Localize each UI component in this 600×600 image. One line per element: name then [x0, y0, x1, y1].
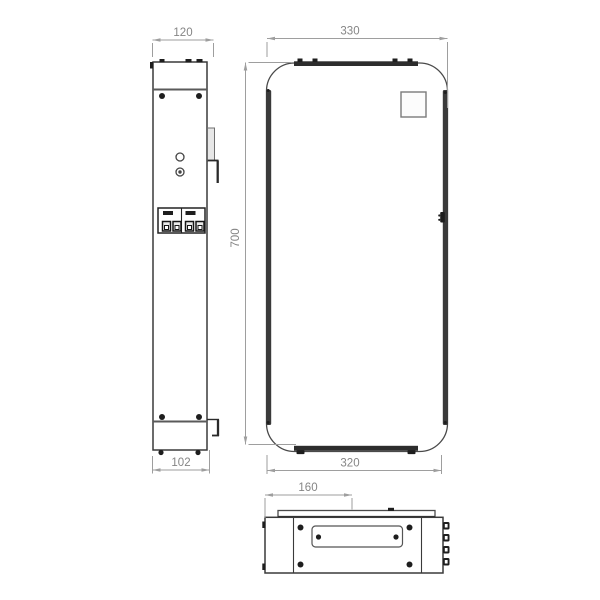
- side-hole-circle: [176, 153, 184, 161]
- front-left-trim: [266, 90, 271, 425]
- side-wall-bracket-top: [208, 128, 219, 183]
- front-view: [266, 59, 448, 455]
- dim-side-base-label: 102: [171, 457, 190, 469]
- dim-front-base-label: 320: [340, 458, 359, 470]
- side-view: [150, 59, 219, 455]
- side-button-circle: [176, 168, 184, 176]
- front-outline: [267, 63, 448, 452]
- bottom-access-plate: [312, 526, 403, 547]
- side-breaker-block: [158, 208, 205, 233]
- bottom-view: [262, 508, 449, 573]
- bottom-plate-screw: [388, 508, 394, 511]
- bottom-cable-glands: [443, 522, 450, 566]
- dim-front-height-label: 700: [230, 228, 242, 247]
- side-wall-bracket-bottom: [207, 420, 219, 437]
- front-right-trim: [443, 90, 448, 425]
- dim-side-width: 120: [153, 27, 214, 57]
- dim-front-base: 320: [267, 455, 442, 474]
- technical-drawing-canvas: 120 330 700 102 320: [0, 0, 600, 600]
- front-logo-square: [401, 92, 426, 117]
- dim-top-plate-offset-label: 160: [298, 482, 317, 494]
- dim-front-width-label: 330: [340, 26, 359, 38]
- front-top-mount-bar: [294, 61, 418, 66]
- dim-side-width-label: 120: [173, 27, 192, 39]
- front-bottom-bar: [294, 446, 418, 451]
- side-body: [153, 62, 207, 450]
